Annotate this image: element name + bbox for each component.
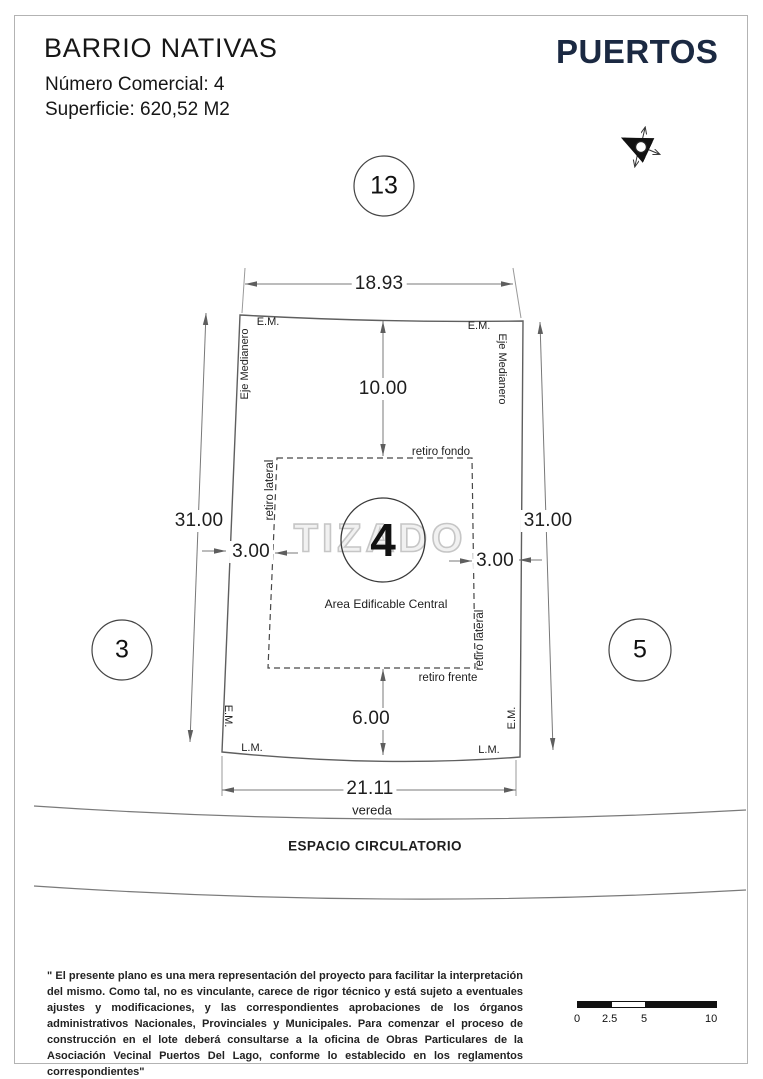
dim-left-depth: 31.00 — [172, 510, 227, 532]
disclaimer-text: " El presente plano es una mera represen… — [47, 969, 523, 1079]
em-label-top-left: E.M. — [257, 316, 280, 328]
scale-bar — [577, 1001, 717, 1008]
scale-bar-segment — [612, 1001, 645, 1008]
em-label-top-right: E.M. — [468, 320, 491, 332]
dim-rear-setback: 10.00 — [356, 378, 411, 400]
espacio-circulatorio-label: ESPACIO CIRCULATORIO — [288, 839, 462, 854]
scale-tick-5: 5 — [641, 1013, 647, 1025]
dim-bottom-width: 21.11 — [343, 778, 396, 800]
lm-label-right: L.M. — [478, 744, 499, 756]
scale-bar-segment — [577, 1001, 612, 1008]
retiro-lateral-right-label: retiro lateral — [474, 610, 486, 671]
eje-medianero-left: Eje Medianero — [239, 329, 251, 400]
retiro-lateral-left-label: retiro lateral — [264, 460, 276, 521]
lm-label-left: L.M. — [241, 742, 262, 754]
neighbor-lot-left: 3 — [115, 636, 129, 665]
neighbor-lot-right: 5 — [633, 636, 647, 665]
dim-front-setback: 6.00 — [349, 708, 393, 730]
area-edificable-label: Area Edificable Central — [325, 597, 448, 611]
dim-top-width: 18.93 — [352, 273, 407, 295]
scale-tick-0: 0 — [574, 1013, 580, 1025]
dim-right-depth: 31.00 — [521, 510, 576, 532]
retiro-frente-label: retiro frente — [419, 672, 478, 684]
neighbor-lot-top: 13 — [370, 172, 398, 201]
em-label-bottom-left: E.M. — [222, 705, 234, 728]
scale-tick-10: 10 — [705, 1013, 717, 1025]
scale-bar-segment — [645, 1001, 717, 1008]
site-plan-page: BARRIO NATIVAS Número Comercial: 4 Super… — [0, 0, 763, 1079]
scale-tick-2-5: 2.5 — [602, 1013, 617, 1025]
em-label-bottom-right: E.M. — [506, 707, 518, 730]
vereda-label: vereda — [352, 803, 392, 818]
retiro-fondo-label: retiro fondo — [412, 446, 470, 458]
eje-medianero-right: Eje Medianero — [496, 334, 508, 405]
dim-side-setback-right: 3.00 — [473, 550, 517, 572]
road-edge-bottom — [34, 886, 746, 899]
lot-number: 4 — [370, 513, 396, 567]
dim-side-setback-left: 3.00 — [229, 541, 273, 563]
